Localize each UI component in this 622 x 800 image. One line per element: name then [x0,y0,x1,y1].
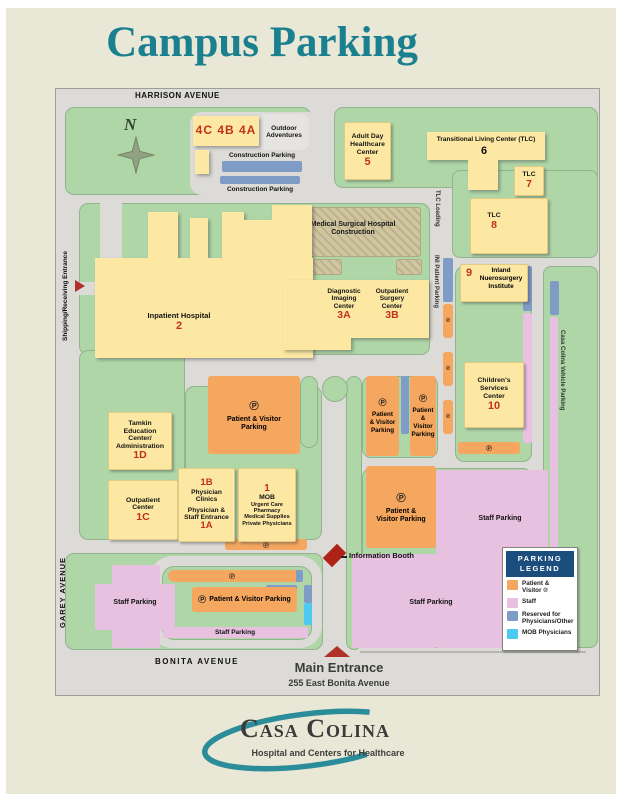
construction-zone-label: Medical Surgical Hospital Construction [297,216,409,242]
patient-bar-ini-1: ℗ [443,304,453,338]
building-mob: 1 MOB Urgent Care Pharmacy Medical Suppl… [238,468,296,542]
building-outpatient: Outpatient Center 1C [108,480,178,540]
building-adult-day-name: Adult Day Healthcare Center [347,133,389,156]
building-tamkin-num: 1D [133,450,146,462]
legend-swatch-reserved [507,611,518,621]
building-tlc7-num: 7 [526,179,532,191]
main-entrance-address: 255 East Bonita Avenue [277,677,401,688]
logo-tagline: Hospital and Centers for Healthcare [228,748,428,758]
info-booth-label: Information Booth [349,551,414,560]
building-childrens-name: Children's Services Center [471,377,517,400]
building-physician-clinics: 1B Physician Clinics Physician & Staff E… [178,468,235,542]
p-circle-icon: ℗ [249,398,259,413]
legend-item-mob: MOB Physicians [507,629,575,639]
building-3b-num: 3B [385,310,398,322]
legend-swatch-mob [507,629,518,639]
patient-visitor-label: Patient & Visitor Parking [375,508,427,525]
patient-visitor-label: Patient & Visitor Parking [209,596,291,603]
street-garey: GAREY AVENUE [58,536,67,628]
legend-item-reserved: Reserved for Physicians/Other [507,611,575,626]
building-tlc6-leg [468,158,498,190]
building-adult-day: Adult Day Healthcare Center 5 [344,122,391,180]
street-bonita: BONITA AVENUE [155,657,239,666]
building-outpatient-name: Outpatient Center [121,497,165,512]
building-3b-label: Outpatient Surgery Center 3B [364,285,420,325]
building-childrens: Children's Services Center 10 [464,362,524,428]
building-tlc6-num: 6 [476,145,492,156]
legend-item-staff: Staff [507,598,575,608]
patient-visitor-lot-b: ℗ Patient & Visitor Parking [410,376,436,456]
p-circle-icon: ℗ [446,318,450,324]
building-mob-num: 1 [264,483,270,494]
building-tamkin: Tamkin Education Center/ Administration … [108,412,172,470]
building-3a-num: 3A [337,310,350,322]
building-1b-num: 1B [200,478,212,489]
patient-bar-loop-top: ℗ [168,570,296,582]
mob-service-private-physicians: Private Physicians [242,521,291,527]
construction-parking-bar-2 [220,176,300,184]
building-tlc7: TLC 7 [514,166,544,196]
page-title: Campus Parking [0,18,524,67]
patient-bar-ini-3: ℗ [443,400,453,434]
building-inpatient-name: Inpatient Hospital [148,312,211,320]
building-tlc8-label: TLC 8 [476,210,512,234]
p-circle-icon: ℗ [378,397,386,409]
compass-n-label: N [124,115,136,135]
p-circle-icon: ℗ [229,571,235,581]
staff-parking-west-label: Staff Parking [98,597,172,607]
building-childrens-num: 10 [488,400,500,412]
p-circle-icon: ℗ [446,366,450,372]
building-inpatient-label: Inpatient Hospital 2 [134,308,224,336]
compass-star-icon [117,136,155,179]
patient-visitor-label: Patient & Visitor Parking [223,416,285,433]
p-circle-icon: ℗ [446,414,450,420]
construction-zone-sub2 [396,259,422,275]
staff-parking-east-label-2: Staff Parking [396,597,466,607]
vehicle-parking-strip-west [523,313,532,443]
ini-patient-parking-label: INI Patient Parking [433,255,439,347]
building-inpatient-num: 2 [176,320,182,332]
p-circle-icon: ℗ [419,393,427,405]
staff-parking-loop-label: Staff Parking [175,628,295,637]
patient-bar-ini-2: ℗ [443,352,453,386]
building-tlc8-num: 8 [491,220,497,232]
reserved-bar-ini-road [443,258,453,302]
building-3ab-lower [283,332,351,350]
patient-visitor-label: Patient & Visitor Parking [370,411,396,435]
building-tlc6-name: Transitional Living Center (TLC) [428,135,544,144]
building-mob-name: MOB [259,494,275,502]
building-ini-num: 9 [466,267,472,290]
building-ih-tower2 [190,218,208,264]
main-entrance-label: Main Entrance [287,660,391,675]
legend-swatch-patient [507,580,518,590]
construction-parking-label-2: Construction Parking [220,185,300,194]
building-ini-name: Inland Nuerosurgery Institute [475,267,527,290]
building-1a-num: 1A [200,521,212,532]
shipping-entrance-label: Shipping/Receiving Entrance [62,225,69,341]
construction-parking-label-1: Construction Parking [222,151,302,160]
parking-legend: PARKING LEGEND Patient & Visitor ℗ Staff… [502,547,578,651]
roundabout-island [322,376,348,402]
building-1b-name: Physician Clinics [187,489,227,504]
road-edge-line [360,651,586,653]
mob-physician-bar [304,603,312,625]
p-circle-icon: ℗ [486,443,492,453]
building-3b-name: Outpatient Surgery Center [369,288,415,310]
building-4abc-label: 4C 4B 4A [193,122,259,140]
p-circle-icon: ℗ [198,594,206,606]
street-harrison: HARRISON AVENUE [135,91,220,100]
building-ih-tower5 [272,205,312,262]
building-ih-tower1 [148,212,178,262]
tlc-loading-label: TLC Loading [434,190,440,242]
legend-label-reserved: Reserved for Physicians/Other [522,611,572,626]
cc-vehicle-parking-label: Casa Colina Vehicle Parking [559,330,565,448]
legend-label-mob: MOB Physicians [522,629,571,637]
info-booth-leader-line [341,556,347,558]
patient-bar-under-b10: ℗ [458,442,520,454]
building-1a-name: Physician & Staff Entrance [183,507,231,522]
staff-parking-east-label-1: Staff Parking [465,513,535,523]
building-adult-day-num: 5 [364,156,370,168]
patient-visitor-lot-loop: ℗ Patient & Visitor Parking [192,587,297,612]
construction-parking-bar-1 [222,161,302,172]
parking-legend-title: PARKING LEGEND [506,551,574,577]
reserved-bar-loop-top [295,570,303,582]
building-outpatient-num: 1C [136,512,149,524]
staff-parking-west-b [95,584,175,630]
campus-parking-page: Campus Parking Medical Surgical Hospital… [0,0,622,800]
patient-visitor-lot-main: ℗ Patient & Visitor Parking [208,376,300,454]
building-4abc-annex [195,150,209,174]
building-4abc-num: 4C 4B 4A [196,124,257,137]
legend-item-patient-visitor: Patient & Visitor ℗ [507,580,575,595]
building-tamkin-name: Tamkin Education Center/ Administration [112,420,168,450]
patient-visitor-label: Patient & Visitor Parking [411,407,435,438]
reserved-bar-center [401,376,409,434]
legend-label-patient: Patient & Visitor ℗ [522,580,566,595]
vehicle-parking-strip-east [550,317,558,553]
building-ini-label: 9 Inland Nuerosurgery Institute [463,267,527,290]
shipping-entrance-arrow-icon [75,280,85,292]
main-entrance-arrow-icon [324,646,350,657]
median-teardrop-left [300,376,318,448]
outdoor-adventures-label: Outdoor Adventures [260,119,308,145]
reserved-bar-east-2 [550,281,559,315]
logo-wordmark: Casa Colina [200,714,430,744]
p-circle-icon: ℗ [396,490,406,505]
legend-swatch-staff [507,598,518,608]
reserved-bar-loop-side [304,585,312,603]
patient-visitor-lot-south: ℗ Patient & Visitor Parking [366,466,436,548]
legend-label-staff: Staff [522,598,536,606]
patient-visitor-lot-a: ℗ Patient & Visitor Parking [366,376,399,456]
building-3a-name: Diagnostic Imaging Center [321,288,367,310]
